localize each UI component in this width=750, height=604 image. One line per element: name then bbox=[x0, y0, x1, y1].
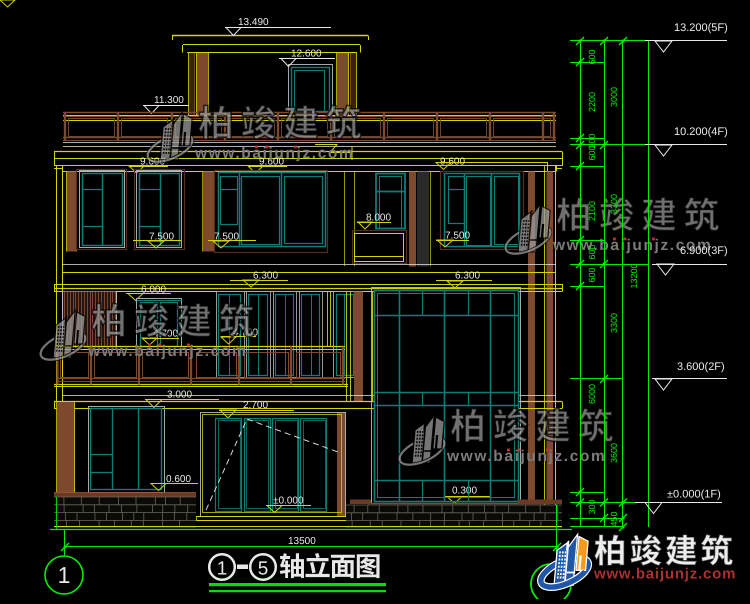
svg-text:13200: 13200 bbox=[629, 263, 639, 288]
svg-text:600: 600 bbox=[587, 244, 597, 259]
svg-text:www.baijunjz.com: www.baijunjz.com bbox=[87, 343, 247, 360]
svg-text:10.200(4F): 10.200(4F) bbox=[674, 126, 728, 138]
svg-text:11.300: 11.300 bbox=[154, 95, 184, 106]
svg-text:600: 600 bbox=[587, 49, 597, 64]
svg-text:www.baijunjz.com: www.baijunjz.com bbox=[593, 566, 736, 583]
svg-text:www.baijunjz.com: www.baijunjz.com bbox=[446, 448, 606, 465]
svg-text:3.000: 3.000 bbox=[167, 390, 192, 401]
svg-text:1: 1 bbox=[58, 562, 71, 588]
svg-text:12.600: 12.600 bbox=[291, 49, 322, 60]
svg-text:6.300: 6.300 bbox=[455, 271, 480, 282]
svg-text:±0.000(1F): ±0.000(1F) bbox=[667, 489, 721, 501]
svg-text:2.700: 2.700 bbox=[243, 400, 268, 411]
svg-text:600: 600 bbox=[587, 267, 597, 282]
svg-text:2100: 2100 bbox=[587, 201, 597, 221]
svg-text:1: 1 bbox=[217, 559, 228, 580]
svg-text:0.300: 0.300 bbox=[452, 486, 477, 497]
svg-text:450: 450 bbox=[609, 511, 619, 526]
svg-text:300: 300 bbox=[587, 499, 597, 514]
svg-text:3300: 3300 bbox=[609, 194, 619, 214]
svg-text:3300: 3300 bbox=[609, 313, 619, 333]
svg-text:3000: 3000 bbox=[609, 87, 619, 107]
svg-text:600: 600 bbox=[587, 145, 597, 160]
svg-text:±0.000: ±0.000 bbox=[273, 496, 304, 507]
svg-text:5: 5 bbox=[258, 559, 269, 580]
svg-text:13500: 13500 bbox=[288, 536, 316, 547]
svg-text:6000: 6000 bbox=[587, 384, 597, 404]
svg-text:3.600(2F): 3.600(2F) bbox=[677, 361, 725, 373]
svg-text:6.900(3F): 6.900(3F) bbox=[680, 245, 728, 257]
svg-text:13.490: 13.490 bbox=[238, 17, 269, 28]
svg-text:www.baijunjz.com: www.baijunjz.com bbox=[194, 145, 354, 162]
svg-text:13.200(5F): 13.200(5F) bbox=[674, 22, 728, 34]
svg-text:2200: 2200 bbox=[587, 92, 597, 112]
svg-text:3600: 3600 bbox=[609, 443, 619, 463]
